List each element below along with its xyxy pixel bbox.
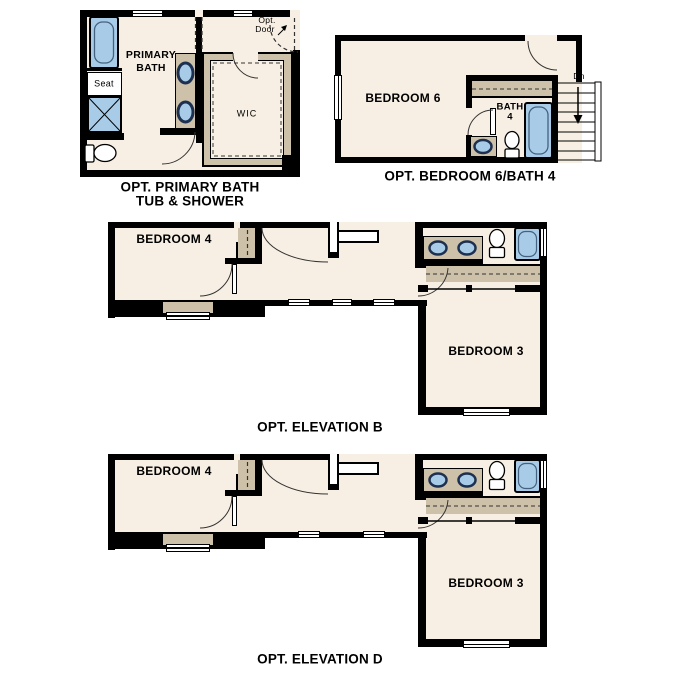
wall — [236, 474, 238, 490]
window — [463, 408, 510, 416]
window — [166, 544, 210, 552]
wall — [515, 517, 547, 524]
vanity-counter — [423, 468, 483, 492]
wall — [265, 532, 427, 538]
wall — [418, 517, 428, 524]
window — [334, 75, 342, 120]
window — [373, 299, 395, 306]
window — [539, 460, 547, 489]
bedroom3-label: BEDROOM 3 — [448, 577, 523, 589]
wall — [552, 75, 558, 163]
stair-rail — [328, 222, 339, 256]
vanity-counter — [423, 236, 483, 260]
wall — [80, 133, 124, 140]
vanity-counter — [470, 136, 497, 157]
primary-bath-label-line2: BATH — [136, 63, 166, 74]
wall — [335, 35, 525, 41]
bedroom3-label: BEDROOM 3 — [448, 345, 523, 357]
wall — [160, 128, 202, 135]
window — [463, 640, 510, 648]
wall — [80, 170, 300, 177]
stair-stringer — [595, 82, 601, 161]
wall — [255, 222, 262, 264]
wall — [262, 454, 333, 460]
wall — [108, 454, 234, 460]
window — [363, 531, 385, 538]
plan4-caption: OPT. ELEVATION D — [257, 652, 383, 666]
wall — [80, 68, 122, 71]
wall — [335, 157, 558, 163]
plan1-caption-line1: OPT. PRIMARY BATH — [121, 180, 260, 194]
window — [132, 10, 163, 17]
closet-shelf — [426, 266, 540, 282]
wall — [466, 285, 472, 292]
window — [332, 299, 352, 306]
wic-label: WIC — [237, 110, 258, 119]
plan2-caption: OPT. BEDROOM 6/BATH 4 — [384, 169, 555, 183]
window — [166, 312, 210, 320]
door-leaf — [490, 108, 496, 135]
bedroom4-label: BEDROOM 4 — [136, 233, 211, 245]
seat-label: Seat — [94, 80, 114, 89]
wall — [418, 285, 428, 292]
shower — [87, 96, 122, 133]
plan-bedroom6-bath4: BEDROOM 6 BATH 4 Dn OPT. BEDROOM 6/BATH … — [330, 30, 615, 195]
wall — [108, 222, 234, 228]
plan1-caption-line2: TUB & SHOWER — [136, 194, 244, 208]
primary-bath-label-line1: PRIMARY — [126, 50, 176, 61]
stairs-dn-label: Dn — [573, 72, 584, 81]
wall — [203, 10, 233, 17]
wall — [415, 454, 547, 460]
stair-rail — [339, 230, 379, 243]
wall — [236, 242, 238, 258]
stair-rail — [339, 462, 379, 475]
stair-rail-post — [328, 484, 339, 490]
wall — [80, 10, 132, 17]
bath4-label-line2: 4 — [507, 112, 513, 122]
bedroom4-label: BEDROOM 4 — [136, 465, 211, 477]
wall — [80, 10, 87, 177]
wall — [262, 222, 333, 228]
door-leaf — [232, 496, 237, 526]
opt-door-label-line2: Door — [255, 25, 275, 34]
wall — [282, 155, 300, 177]
plan-elevation-b: BEDROOM 4 BEDROOM 3 OPT. ELEVATION B — [108, 220, 553, 438]
wall — [255, 454, 262, 496]
wall — [415, 222, 547, 228]
window — [298, 531, 320, 538]
closet-shelf — [426, 498, 540, 514]
stair-rail — [328, 454, 339, 488]
wall — [418, 532, 426, 647]
door-opening — [233, 50, 258, 62]
wall — [466, 517, 472, 524]
closet-shelf — [472, 81, 552, 98]
window — [288, 299, 310, 306]
floorplan-sheet: PRIMARY BATH Seat WIC Opt. Door OPT. PRI… — [0, 0, 687, 687]
window — [539, 228, 547, 257]
plan3-caption: OPT. ELEVATION B — [257, 420, 383, 434]
wall — [163, 10, 195, 17]
wall — [418, 300, 426, 415]
door-leaf — [232, 264, 237, 294]
stair-rail-post — [328, 252, 339, 258]
wall — [515, 285, 547, 292]
window — [233, 10, 253, 17]
bedroom6-label: BEDROOM 6 — [365, 92, 440, 104]
vanity-counter — [175, 53, 196, 133]
plan-elevation-d: BEDROOM 4 BEDROOM 3 OPT. ELEVATION D — [108, 452, 553, 670]
plan-primary-bath: PRIMARY BATH Seat WIC Opt. Door OPT. PRI… — [78, 8, 308, 218]
